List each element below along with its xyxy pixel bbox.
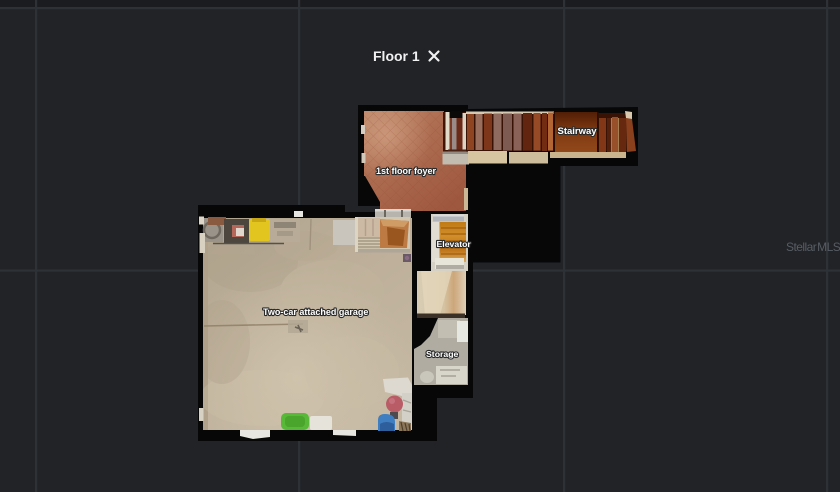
svg-text:Floor 1: Floor 1 xyxy=(373,48,420,64)
svg-text:1st floor foyer: 1st floor foyer xyxy=(376,166,437,176)
svg-text:StellarMLS: StellarMLS xyxy=(786,240,840,254)
svg-text:Elevator: Elevator xyxy=(437,239,472,249)
svg-text:Two-car attached garage: Two-car attached garage xyxy=(263,307,368,317)
svg-text:Stairway: Stairway xyxy=(558,126,598,137)
svg-text:Storage: Storage xyxy=(426,349,459,359)
